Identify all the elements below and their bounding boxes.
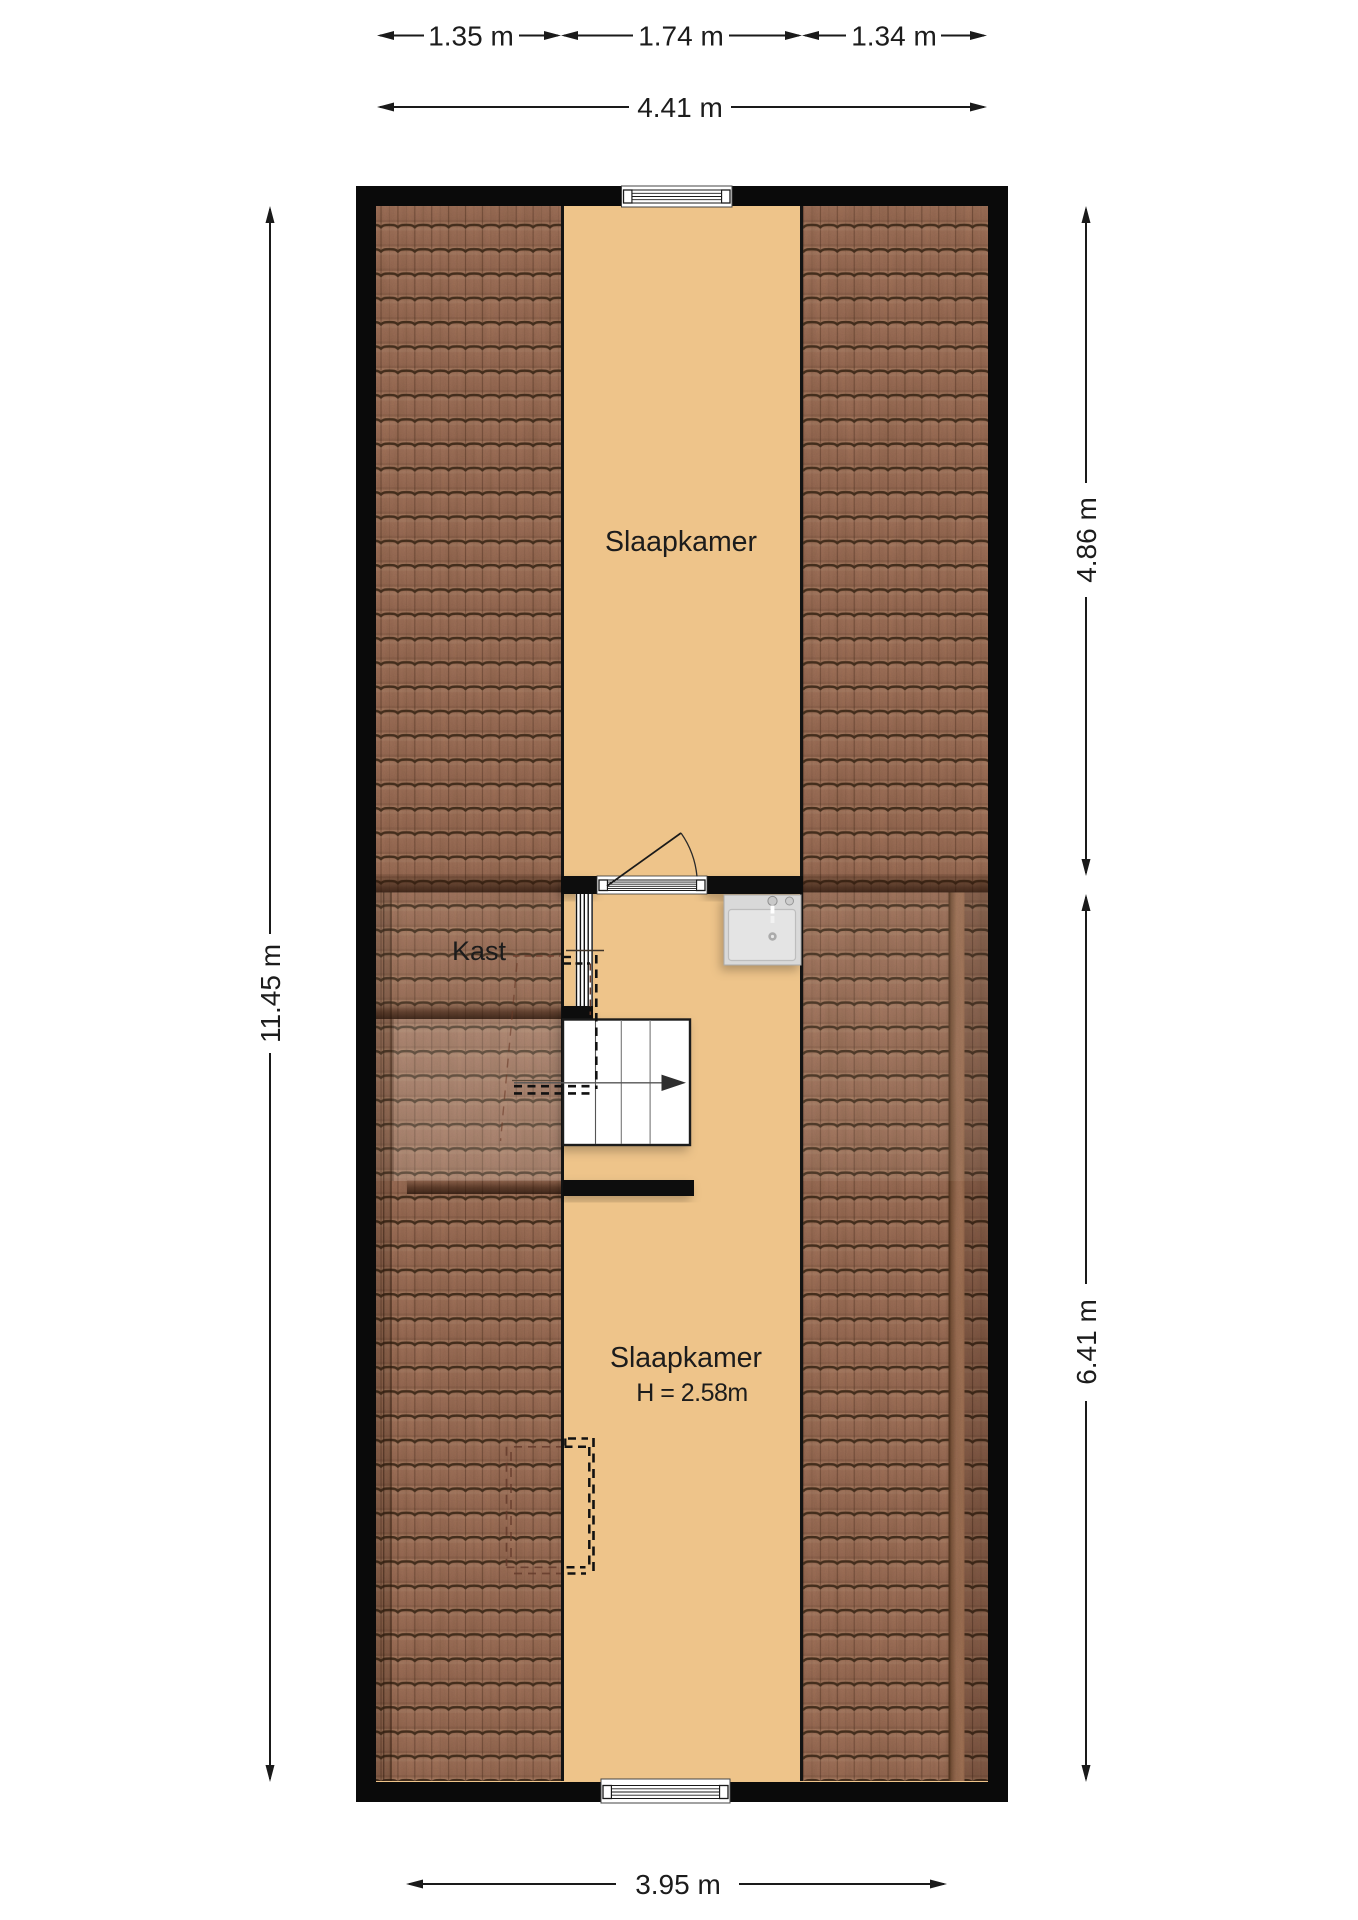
svg-text:1.34 m: 1.34 m xyxy=(851,21,937,52)
svg-text:Slaapkamer: Slaapkamer xyxy=(610,1342,763,1374)
svg-text:4.86 m: 4.86 m xyxy=(1071,497,1102,583)
svg-text:Slaapkamer: Slaapkamer xyxy=(605,526,758,558)
svg-text:1.35 m: 1.35 m xyxy=(428,21,514,52)
svg-text:H = 2.58m: H = 2.58m xyxy=(636,1379,748,1407)
svg-text:3.95 m: 3.95 m xyxy=(635,1869,721,1900)
svg-text:11.45 m: 11.45 m xyxy=(255,944,286,1043)
svg-text:6.41 m: 6.41 m xyxy=(1071,1299,1102,1385)
svg-text:4.41 m: 4.41 m xyxy=(637,92,723,123)
svg-text:Kast: Kast xyxy=(452,936,507,966)
svg-text:1.74 m: 1.74 m xyxy=(638,21,724,52)
